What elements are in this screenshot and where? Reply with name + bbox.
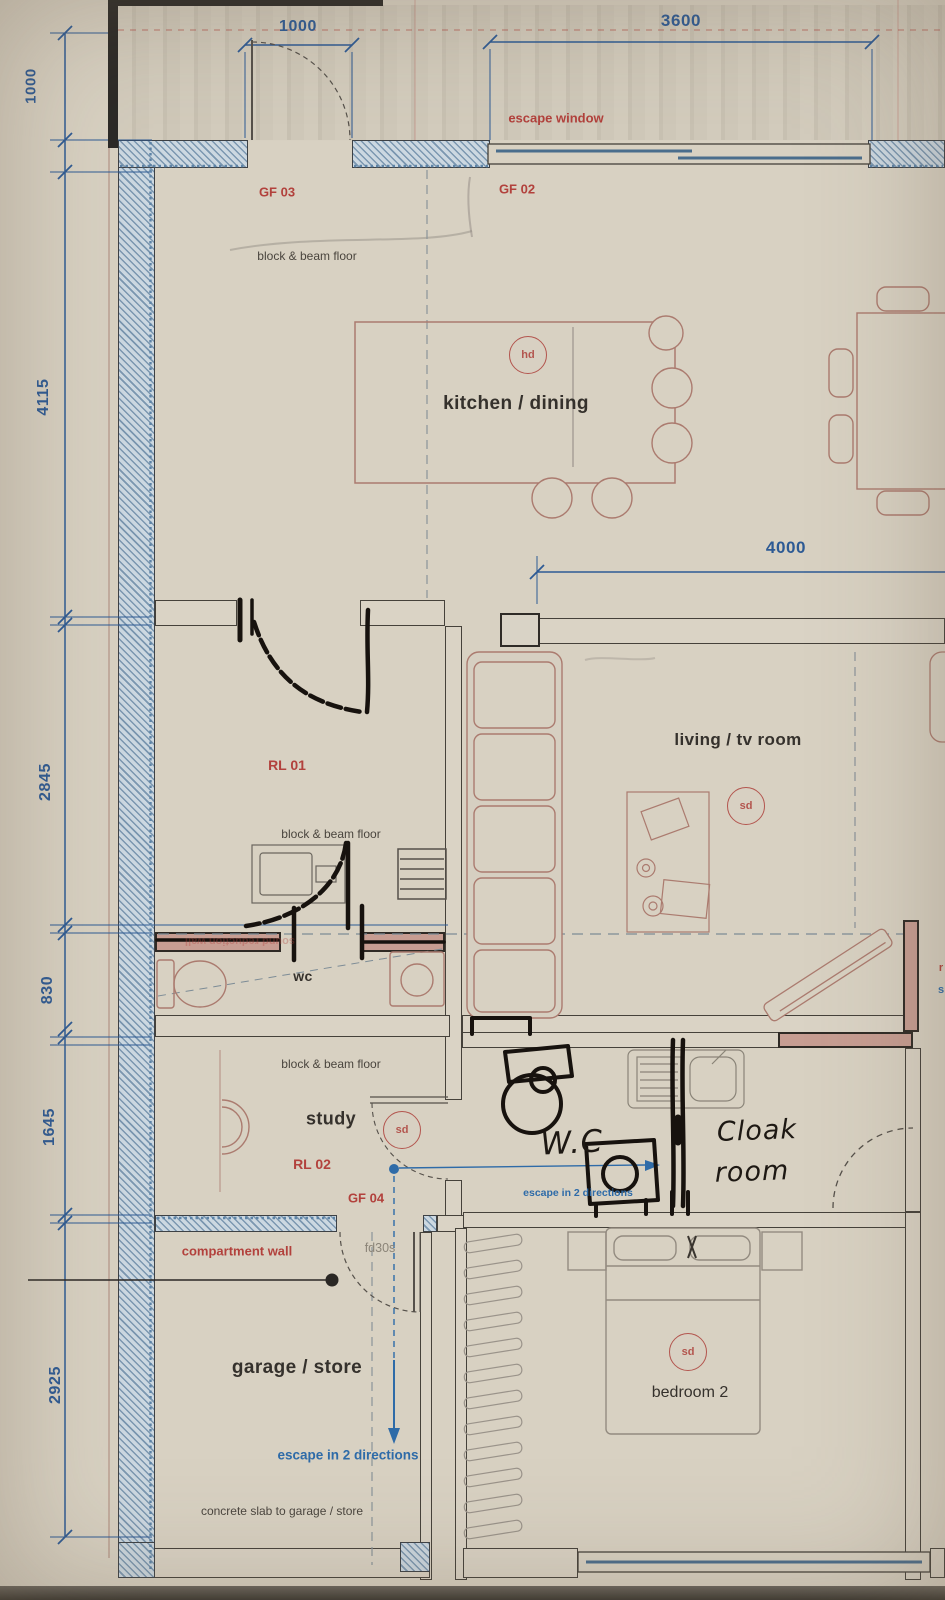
heat-detector-icon: hd — [509, 336, 547, 374]
note-concrete-slab: concrete slab to garage / store — [201, 1504, 363, 1518]
door-arc-study-west — [220, 1050, 249, 1192]
bed — [568, 1228, 802, 1434]
note-fd30s: fd30s — [365, 1241, 396, 1255]
edge-cut-red-text: r — [939, 962, 943, 974]
label-escape-window: escape window — [508, 111, 603, 126]
compartment-wall-leader — [28, 1274, 339, 1287]
hall-counter-lines — [398, 849, 446, 899]
room-bedroom2: bedroom 2 — [652, 1384, 729, 1402]
note-block-beam-1: block & beam floor — [257, 249, 356, 263]
kitchen-chairs — [532, 316, 692, 518]
sofa — [467, 652, 562, 1018]
wardrobe-louvers — [464, 1234, 523, 1540]
dim-left-1645: 1645 — [41, 1108, 59, 1146]
dim-left-2845: 2845 — [37, 763, 55, 801]
room-study: study — [306, 1109, 356, 1130]
handwritten-wc: W.C — [540, 1123, 604, 1162]
floor-plan-photo: 1000 4115 2845 830 1645 2925 1000 3600 4… — [0, 0, 945, 1600]
note-block-beam-3: block & beam floor — [281, 1057, 380, 1071]
photo-edge-left — [108, 0, 118, 148]
room-kitchen-dining: kitchen / dining — [443, 393, 589, 415]
wc-toilet — [157, 960, 226, 1008]
room-wc: wc — [293, 968, 312, 984]
note-escape-2dir-small: escape in 2 directions — [523, 1187, 633, 1199]
heat-detector-label: hd — [521, 349, 534, 361]
smoke-detector-study-icon: sd — [383, 1111, 421, 1149]
dim-living-4000: 4000 — [766, 538, 806, 558]
note-escape-2dir-large: escape in 2 directions — [277, 1448, 418, 1463]
label-sound-reduction-wall: sound reduction wall — [185, 935, 295, 947]
cloak-sink-unit — [628, 1050, 744, 1108]
armchair-partial — [930, 652, 945, 742]
smoke-detector-study-label: sd — [396, 1124, 409, 1136]
edge-cut-blue-text: s — [938, 984, 944, 996]
door-gf03 — [252, 40, 350, 140]
hall-sink-unit — [252, 845, 345, 903]
bedroom2-window-south — [578, 1552, 930, 1572]
label-gf03: GF 03 — [259, 185, 295, 200]
label-rl01: RL 01 — [268, 757, 306, 773]
smoke-detector-bedroom-label: sd — [682, 1346, 695, 1358]
door-cloak-dashed — [833, 1128, 913, 1208]
photo-edge-top — [118, 0, 383, 6]
room-living-tv: living / tv room — [674, 730, 801, 750]
dim-top-3600: 3600 — [661, 11, 701, 31]
label-gf02: GF 02 — [499, 182, 535, 197]
escape-window-north — [488, 144, 870, 164]
hand-drawn-cloak-wall — [672, 1040, 688, 1214]
linework-layer — [0, 0, 945, 1600]
label-rl02: RL 02 — [293, 1156, 331, 1172]
hand-drawn-toilet — [503, 1046, 572, 1133]
dim-left-1000: 1000 — [23, 68, 40, 104]
dim-left-830: 830 — [39, 976, 57, 1005]
smoke-detector-living-label: sd — [740, 800, 753, 812]
room-garage-store: garage / store — [232, 1357, 362, 1379]
photo-edge-bottom — [0, 1586, 945, 1600]
tv-unit — [762, 927, 894, 1022]
note-block-beam-2: block & beam floor — [281, 827, 380, 841]
handwritten-cloak-line2: room — [714, 1155, 789, 1189]
handwritten-cloak-line1: Cloak — [716, 1114, 797, 1148]
label-gf04: GF 04 — [348, 1191, 384, 1206]
smoke-detector-bedroom-icon: sd — [669, 1333, 707, 1371]
dining-table — [829, 287, 945, 515]
coffee-table — [627, 792, 710, 932]
label-compartment-wall: compartment wall — [182, 1244, 293, 1259]
dim-left-2925: 2925 — [47, 1366, 65, 1404]
wc-basin — [390, 952, 444, 1006]
dim-left-4115: 4115 — [35, 378, 53, 415]
dim-top-1000: 1000 — [279, 18, 317, 36]
smoke-detector-living-icon: sd — [727, 787, 765, 825]
